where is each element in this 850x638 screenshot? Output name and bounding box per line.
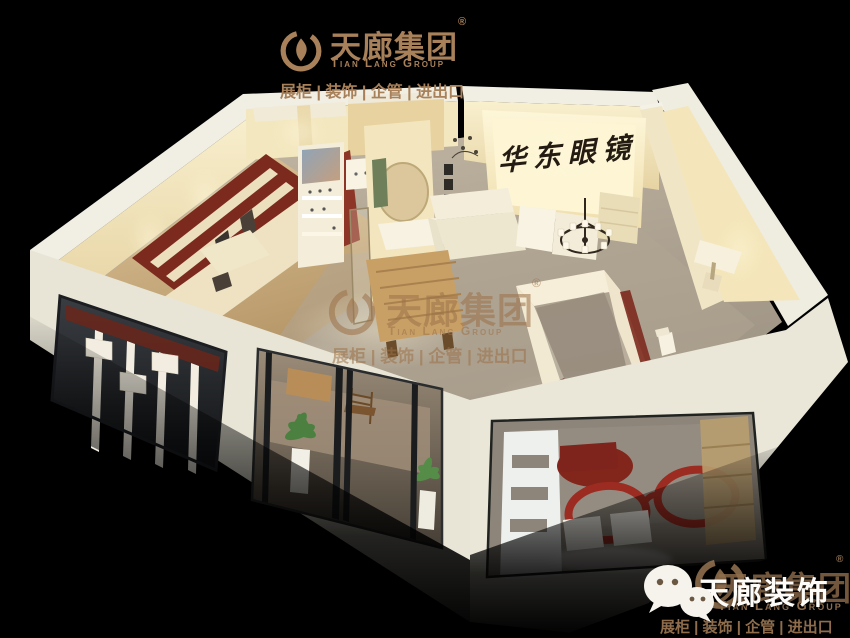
footer-registered-mark: ® bbox=[836, 554, 843, 565]
header-brand-logo: 天廊集团 ® Tian Lang Group 展柜 | 装饰 | 企管 | 进出… bbox=[276, 16, 476, 100]
center-watermark-logo: 天廊集团 ® Tian Lang Group 展柜 | 装饰 | 企管 | 进出… bbox=[326, 282, 551, 368]
brand-english: Tian Lang Group bbox=[331, 58, 445, 70]
footer-overlay-brand: 天廊装饰 bbox=[698, 568, 830, 613]
brand-tagline: 展柜 | 装饰 | 企管 | 进出口 bbox=[280, 78, 464, 102]
wechat-icon bbox=[642, 562, 716, 624]
wall-poster bbox=[372, 158, 388, 208]
flame-drop-ring-icon bbox=[278, 28, 324, 74]
store-3d-render-page: 华东眼镜 天廊集团 ® Tian Lang Group 展柜 | 装饰 | 企管… bbox=[0, 0, 850, 638]
watermark-english: Tian Lang Group bbox=[388, 324, 503, 338]
footer-brand-cluster: 天廊集团 ® Tian Lang Group 展柜 | 装饰 | 企管 | 进出… bbox=[640, 552, 850, 638]
registered-mark: ® bbox=[458, 16, 466, 28]
flame-drop-ring-icon bbox=[326, 286, 378, 338]
watermark-registered-mark: ® bbox=[532, 276, 541, 290]
watermark-tagline: 展柜 | 装饰 | 企管 | 进出口 bbox=[332, 342, 528, 367]
